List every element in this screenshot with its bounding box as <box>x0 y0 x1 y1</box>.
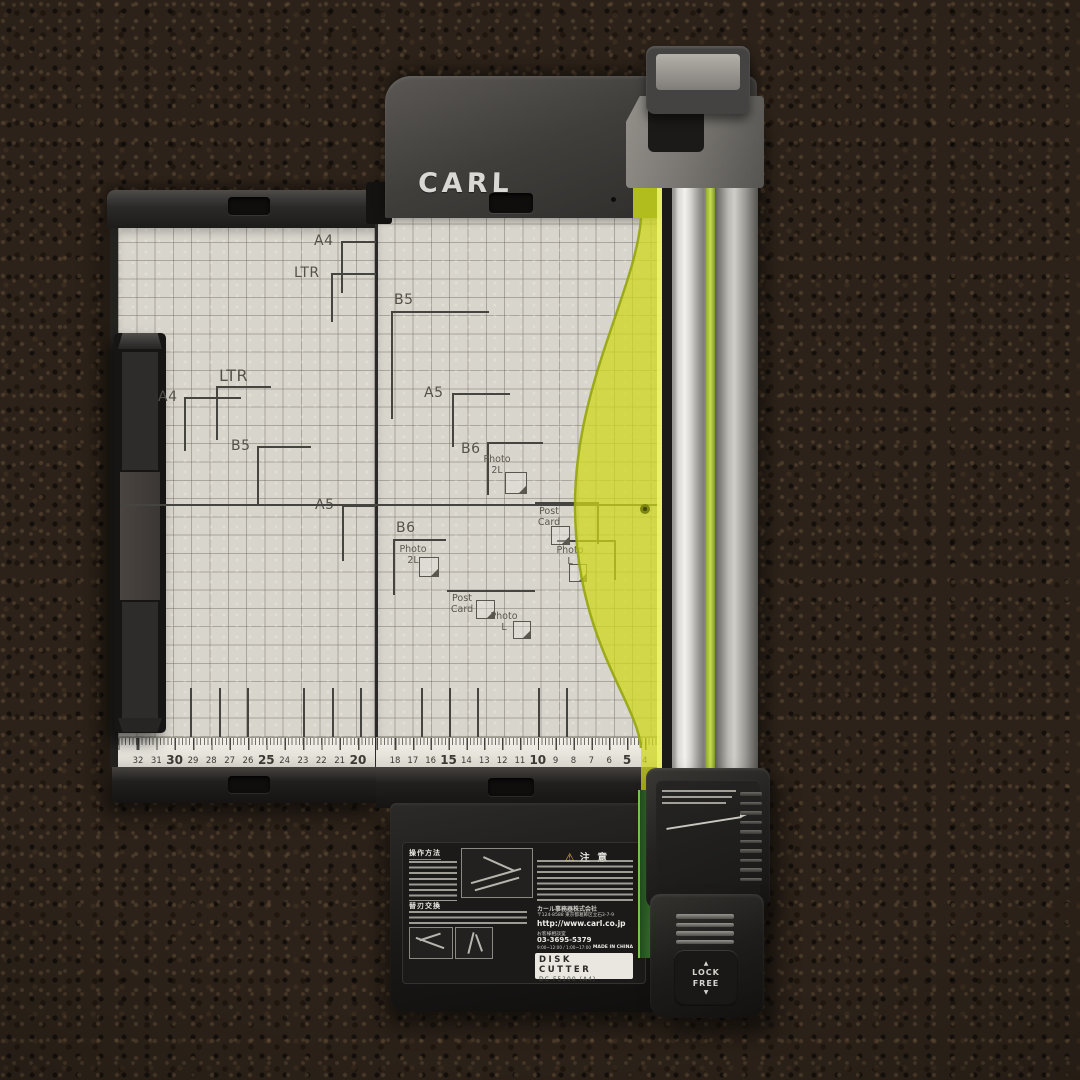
grip-line <box>676 931 734 936</box>
grip-ridge <box>740 849 762 853</box>
grip-ridge <box>740 802 762 806</box>
grip-line <box>676 914 734 919</box>
cutter-rail <box>672 106 706 792</box>
arrow-up-icon: ▲ <box>704 960 709 967</box>
grip-ridge <box>740 840 762 844</box>
knob-grip-lines <box>676 914 734 950</box>
lock-text: LOCK <box>692 967 720 978</box>
grip-ridge <box>740 821 762 825</box>
clamp-lever-top-face <box>656 54 740 90</box>
grip-line <box>676 940 734 945</box>
lock-free-knob: ▲ LOCK FREE ▼ <box>650 894 764 1018</box>
rail-green-strip <box>706 112 715 792</box>
knob-panel: ▲ LOCK FREE ▼ <box>674 950 738 1006</box>
grip-ridge <box>740 830 762 834</box>
grip-ridge <box>740 859 762 863</box>
grip-ridge <box>740 792 762 796</box>
carriage-sticker <box>662 786 746 820</box>
transparent-paper-guide <box>0 0 1080 1080</box>
guide-screw-hole-center <box>643 507 647 511</box>
grip-ridge <box>740 878 762 882</box>
free-text: FREE <box>693 978 720 989</box>
photo-scene: 32313029282726252423222120 1817161514131… <box>0 0 1080 1080</box>
grip-ridge <box>740 868 762 872</box>
cutter-carriage <box>646 768 770 908</box>
grip-ridge <box>740 811 762 815</box>
carriage-grip-ridges <box>740 792 762 892</box>
outer-rail <box>715 118 758 792</box>
arrow-down-icon: ▼ <box>704 989 709 996</box>
grip-line <box>676 923 734 928</box>
